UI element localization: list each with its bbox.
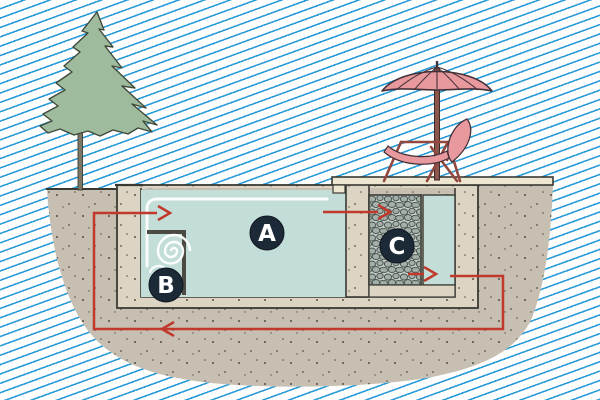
label-c-filter: C (380, 229, 414, 263)
lounge-chair-icon (384, 119, 471, 181)
deck-edge-lip (333, 185, 345, 193)
striped-background: A B C (0, 0, 600, 400)
label-a-text: A (258, 221, 276, 247)
divider-wall (346, 184, 369, 297)
divider-wall-texture (346, 184, 369, 297)
tree-icon (40, 12, 157, 190)
label-b-text: B (157, 273, 175, 299)
tree-foliage (40, 12, 157, 136)
chair-backrest (448, 119, 471, 162)
chamber-floor (369, 285, 455, 297)
shaft-water (423, 195, 455, 285)
pool-cross-section-diagram: A B C (0, 0, 600, 400)
label-b-pump: B (149, 268, 183, 302)
label-c-text: C (389, 234, 406, 260)
label-a-swimming-zone: A (250, 216, 284, 250)
deck-plank (332, 177, 553, 185)
